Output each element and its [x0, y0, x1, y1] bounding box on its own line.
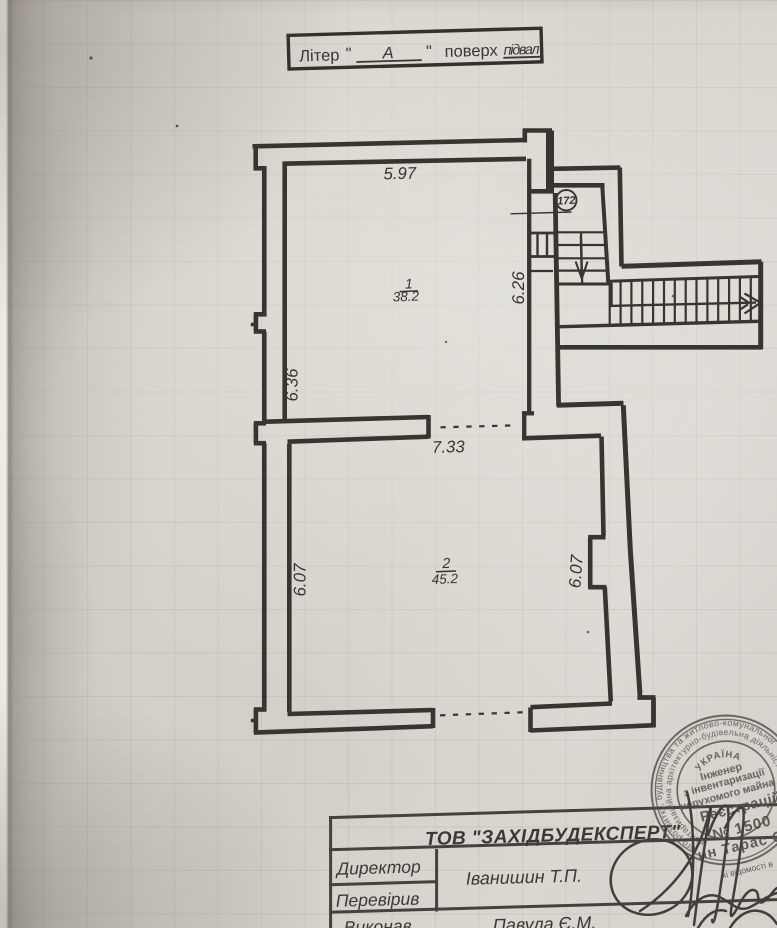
svg-text:А: А — [381, 44, 394, 62]
svg-text:пов інввжф: пов інввжф — [300, 207, 363, 221]
svg-text:Павула Є.М.: Павула Є.М. — [493, 913, 597, 928]
svg-text:6.26: 6.26 — [509, 271, 528, 305]
svg-text:ТОВ "ЗАХІДБУДЕКСПЕРТ": ТОВ "ЗАХІДБУДЕКСПЕРТ" — [425, 822, 682, 850]
svg-text:Літер: Літер — [299, 46, 340, 65]
svg-text:підвал: підвал — [503, 42, 539, 59]
svg-text:45.2: 45.2 — [431, 571, 458, 587]
svg-text:Іванишин Т.П.: Іванишин Т.П. — [466, 866, 583, 889]
svg-text:40 3: 40 3 — [436, 169, 457, 181]
svg-text:6.07: 6.07 — [291, 563, 310, 597]
svg-text:172: 172 — [557, 195, 576, 208]
svg-text:": " — [426, 43, 433, 61]
svg-text:6.07: 6.07 — [565, 554, 586, 589]
svg-text:поверх: поверх — [444, 41, 498, 61]
svg-text:2: 2 — [441, 556, 451, 572]
svg-text:Виконав: Виконав — [344, 916, 412, 928]
svg-text:": " — [345, 45, 352, 63]
svg-text:38.2: 38.2 — [392, 289, 419, 305]
svg-text:Директор: Директор — [335, 856, 422, 878]
svg-text:6.36: 6.36 — [283, 368, 302, 402]
svg-text:• УКРАЇНА •: • УКРАЇНА • — [0, 12, 749, 928]
svg-text:7.33: 7.33 — [432, 437, 466, 457]
svg-text:5.97: 5.97 — [383, 164, 417, 184]
svg-text:Перевірив: Перевірив — [336, 888, 420, 910]
svg-text:осхв нилкм взк: осхв нилкм взк — [296, 187, 379, 201]
svg-text:Б вд-600: Б вд-600 — [60, 299, 121, 316]
